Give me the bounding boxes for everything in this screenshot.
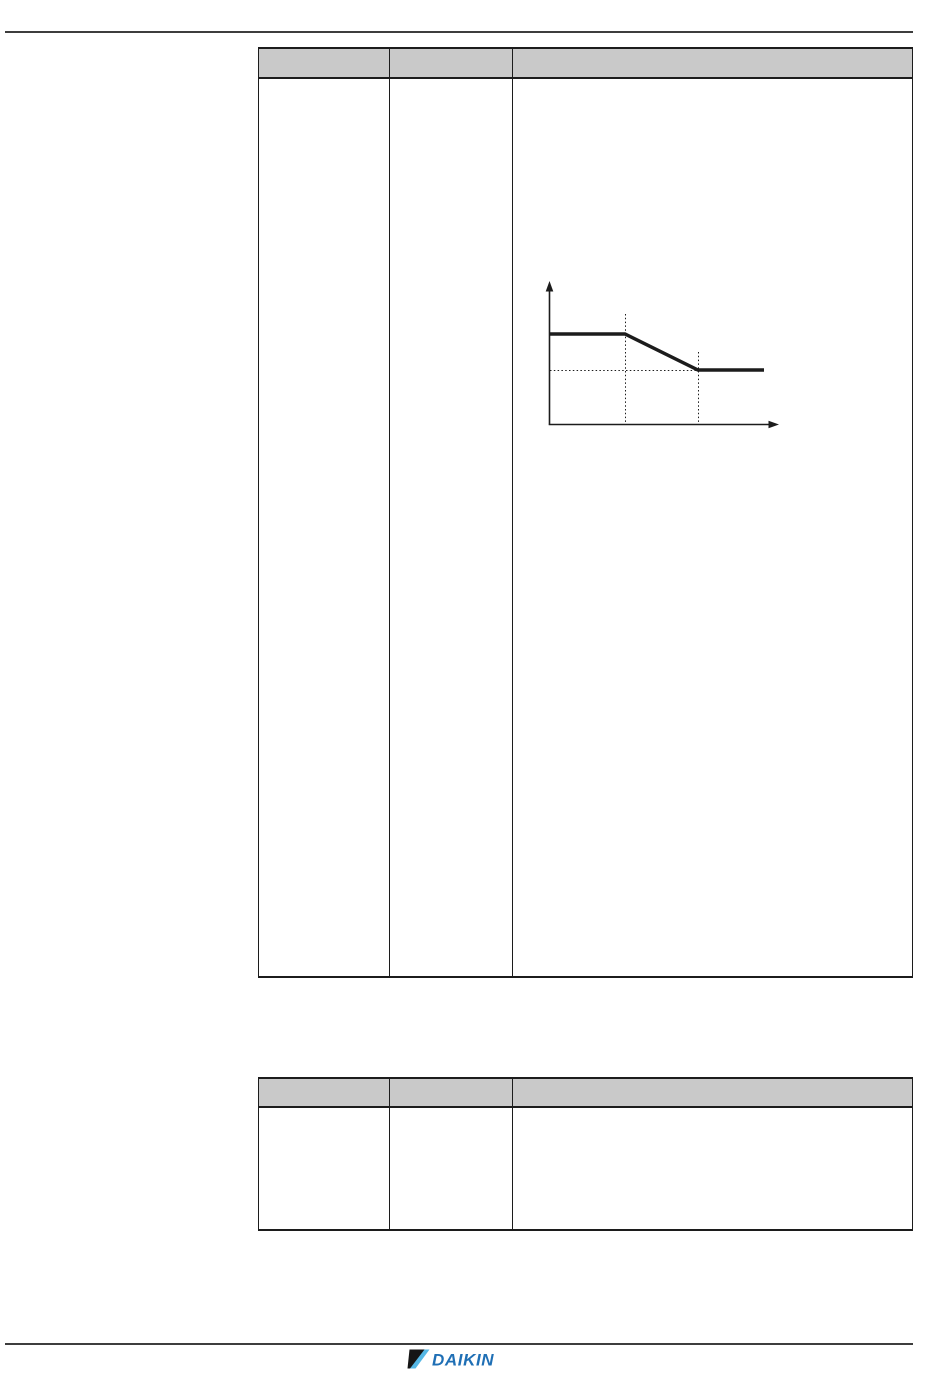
- daikin-logo: DAIKIN: [407, 1349, 519, 1369]
- lower-table-body-col1: [259, 1108, 390, 1229]
- upper-parameter-table: [258, 47, 913, 978]
- document-page: DAIKIN: [0, 0, 950, 1387]
- y-axis-arrow-icon: [546, 281, 554, 292]
- upper-table-body-col2: [390, 79, 513, 976]
- lower-table-header-col3: [513, 1079, 913, 1108]
- upper-table-header-col3: [513, 49, 913, 79]
- weather-dependent-curve-chart: [540, 272, 788, 434]
- lower-table-header-col1: [259, 1079, 390, 1108]
- setpoint-curve-line: [550, 334, 764, 370]
- upper-table-header-col2: [390, 49, 513, 79]
- upper-table-body-col1: [259, 79, 390, 976]
- upper-table-header-col1: [259, 49, 390, 79]
- lower-parameter-table: [258, 1077, 913, 1231]
- lower-table-body-col3: [513, 1108, 913, 1229]
- lower-table-body-col2: [390, 1108, 513, 1229]
- lower-table-header-col2: [390, 1079, 513, 1108]
- upper-table-body-col3: [513, 79, 913, 976]
- bottom-rule: [5, 1343, 913, 1345]
- top-rule: [5, 31, 913, 33]
- daikin-wordmark: DAIKIN: [432, 1351, 494, 1370]
- x-axis-arrow-icon: [769, 421, 780, 429]
